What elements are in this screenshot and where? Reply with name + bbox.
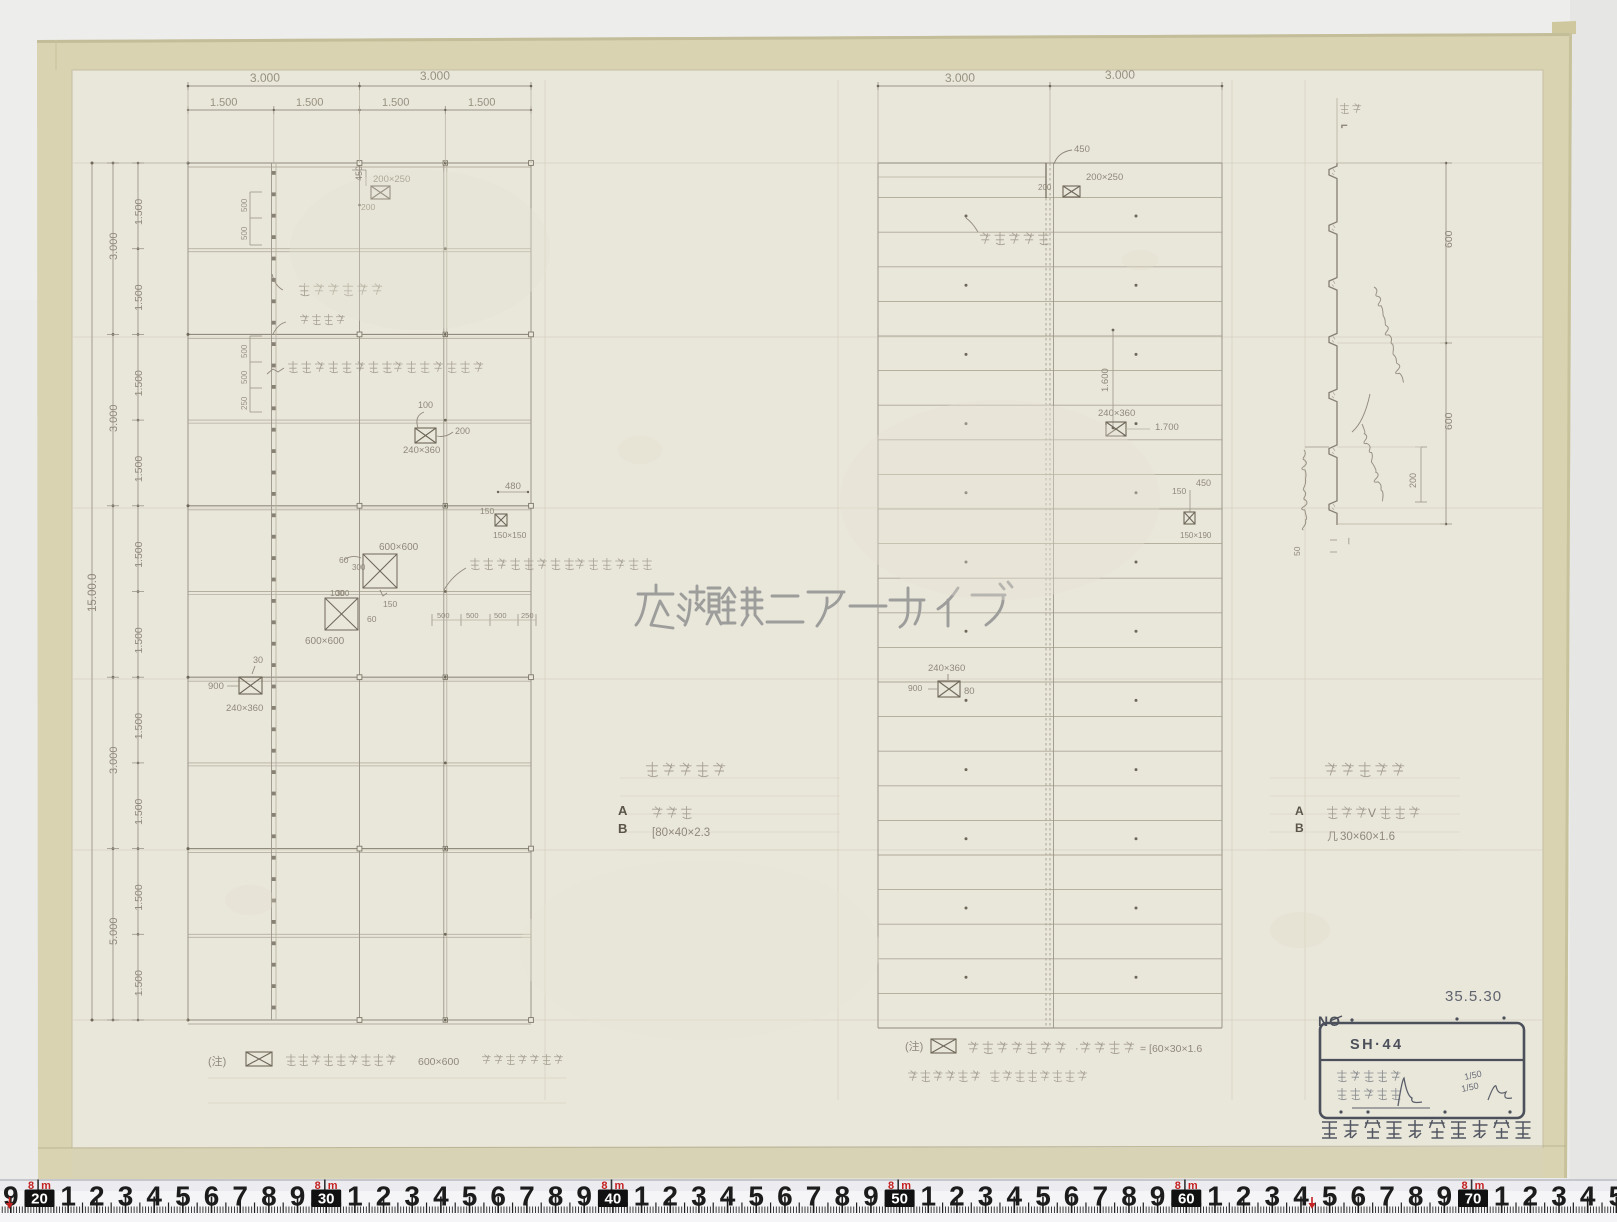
svg-text:50: 50 bbox=[1292, 546, 1302, 556]
svg-text:60: 60 bbox=[1178, 1191, 1195, 1208]
svg-text:200×250: 200×250 bbox=[1086, 172, 1123, 183]
svg-text:1.500: 1.500 bbox=[210, 97, 238, 109]
svg-text:1.500: 1.500 bbox=[133, 370, 145, 396]
svg-text:7: 7 bbox=[519, 1181, 535, 1212]
svg-text:70: 70 bbox=[1465, 1191, 1482, 1208]
svg-text:2: 2 bbox=[376, 1181, 392, 1212]
svg-text:6: 6 bbox=[204, 1181, 220, 1212]
svg-text:600×600: 600×600 bbox=[305, 636, 345, 647]
svg-text:2: 2 bbox=[949, 1181, 965, 1212]
svg-text:ー: ー bbox=[1345, 537, 1354, 545]
svg-text:5: 5 bbox=[1035, 1181, 1051, 1212]
svg-text:1.500: 1.500 bbox=[382, 97, 410, 109]
svg-text:2: 2 bbox=[1523, 1181, 1539, 1212]
svg-text:1.500: 1.500 bbox=[133, 541, 145, 567]
svg-text:4: 4 bbox=[146, 1181, 162, 1212]
svg-text:20: 20 bbox=[31, 1191, 48, 1208]
svg-text:900: 900 bbox=[208, 681, 224, 692]
svg-text:5: 5 bbox=[1322, 1181, 1338, 1212]
svg-text:3: 3 bbox=[118, 1181, 134, 1212]
svg-text:A: A bbox=[1295, 804, 1304, 818]
svg-text:240×360: 240×360 bbox=[1098, 408, 1135, 419]
svg-text:150: 150 bbox=[480, 506, 494, 516]
svg-text:300: 300 bbox=[336, 589, 350, 598]
svg-text:60: 60 bbox=[367, 614, 377, 624]
svg-text:1.700: 1.700 bbox=[1155, 422, 1179, 433]
svg-text:3: 3 bbox=[1265, 1181, 1281, 1212]
svg-text:1: 1 bbox=[1207, 1181, 1223, 1212]
svg-text:8: 8 bbox=[28, 1180, 34, 1192]
svg-text:8: 8 bbox=[1175, 1180, 1181, 1192]
svg-text:= [60×30×1.6: = [60×30×1.6 bbox=[1140, 1043, 1202, 1055]
svg-text:B: B bbox=[618, 821, 627, 836]
svg-text:m: m bbox=[901, 1180, 911, 1192]
svg-text:200: 200 bbox=[1038, 183, 1052, 192]
svg-text:200: 200 bbox=[1408, 473, 1418, 488]
svg-text:3.000: 3.000 bbox=[1105, 67, 1136, 82]
svg-text:9: 9 bbox=[576, 1181, 592, 1212]
svg-text:5.000: 5.000 bbox=[108, 917, 120, 945]
svg-text:600: 600 bbox=[1443, 230, 1455, 248]
svg-text:80: 80 bbox=[964, 686, 975, 697]
svg-text:3: 3 bbox=[978, 1181, 994, 1212]
svg-text:3.000: 3.000 bbox=[108, 232, 120, 260]
svg-text:9: 9 bbox=[3, 1181, 19, 1212]
svg-text:50: 50 bbox=[891, 1191, 908, 1208]
svg-text:9: 9 bbox=[290, 1181, 306, 1212]
svg-text:1: 1 bbox=[347, 1181, 363, 1212]
svg-text:5: 5 bbox=[1609, 1181, 1617, 1212]
svg-text:m: m bbox=[41, 1180, 51, 1192]
svg-text:3: 3 bbox=[1551, 1181, 1567, 1212]
svg-text:5: 5 bbox=[748, 1181, 764, 1212]
svg-text:4: 4 bbox=[1293, 1181, 1309, 1212]
svg-text:150×150: 150×150 bbox=[493, 530, 527, 540]
svg-text:4: 4 bbox=[1007, 1181, 1023, 1212]
svg-text:500: 500 bbox=[437, 611, 450, 620]
svg-text:m: m bbox=[615, 1180, 625, 1192]
svg-text:3.000: 3.000 bbox=[945, 70, 976, 85]
svg-text:4: 4 bbox=[1580, 1181, 1596, 1212]
svg-text:8: 8 bbox=[315, 1180, 321, 1192]
svg-text:1.500: 1.500 bbox=[133, 627, 145, 653]
svg-text:m: m bbox=[328, 1180, 338, 1192]
svg-text:240×360: 240×360 bbox=[403, 445, 440, 456]
svg-text:30×60×1.6: 30×60×1.6 bbox=[1340, 831, 1395, 843]
svg-text:SH·44: SH·44 bbox=[1350, 1037, 1404, 1053]
svg-text:[80×40×2.3: [80×40×2.3 bbox=[652, 827, 710, 839]
svg-text:8: 8 bbox=[888, 1180, 894, 1192]
svg-text:480: 480 bbox=[505, 481, 521, 492]
svg-text:1.500: 1.500 bbox=[133, 970, 145, 996]
svg-text:150×190: 150×190 bbox=[1180, 531, 1212, 540]
svg-text:(注): (注) bbox=[905, 1039, 923, 1053]
svg-text:几: 几 bbox=[1327, 831, 1338, 843]
svg-text:8: 8 bbox=[1461, 1180, 1467, 1192]
svg-text:A: A bbox=[618, 803, 628, 818]
svg-text:(注): (注) bbox=[208, 1054, 226, 1068]
svg-text:m: m bbox=[1188, 1180, 1198, 1192]
svg-text:7: 7 bbox=[1093, 1181, 1109, 1212]
svg-text:1.500: 1.500 bbox=[296, 97, 324, 109]
svg-text:4: 4 bbox=[720, 1181, 736, 1212]
svg-text:2: 2 bbox=[89, 1181, 105, 1212]
svg-text:150: 150 bbox=[383, 599, 397, 609]
svg-text:500: 500 bbox=[466, 611, 479, 620]
svg-text:1.500: 1.500 bbox=[133, 199, 145, 225]
svg-text:5: 5 bbox=[462, 1181, 478, 1212]
svg-text:250: 250 bbox=[240, 396, 249, 410]
svg-text:500: 500 bbox=[494, 611, 507, 620]
svg-text:30: 30 bbox=[318, 1191, 335, 1208]
svg-text:40: 40 bbox=[605, 1191, 622, 1208]
svg-text:1.500: 1.500 bbox=[133, 284, 145, 310]
svg-text:100: 100 bbox=[418, 400, 433, 410]
svg-text:30: 30 bbox=[253, 655, 263, 665]
svg-text:500: 500 bbox=[240, 344, 249, 358]
svg-text:500: 500 bbox=[240, 370, 249, 384]
svg-text:15.00.0: 15.00.0 bbox=[87, 574, 99, 612]
svg-text:150: 150 bbox=[1172, 486, 1186, 496]
svg-text:7: 7 bbox=[232, 1181, 248, 1212]
svg-text:3.000: 3.000 bbox=[108, 746, 120, 774]
svg-text:1.500: 1.500 bbox=[133, 713, 145, 739]
svg-text:3.000: 3.000 bbox=[250, 70, 281, 85]
svg-text:3: 3 bbox=[404, 1181, 420, 1212]
svg-text:7: 7 bbox=[806, 1181, 822, 1212]
svg-text:7: 7 bbox=[1379, 1181, 1395, 1212]
svg-text:1: 1 bbox=[60, 1181, 76, 1212]
svg-text:9: 9 bbox=[1150, 1181, 1166, 1212]
svg-text:600×600: 600×600 bbox=[418, 1056, 459, 1068]
svg-text:B: B bbox=[1295, 821, 1304, 835]
svg-text:1: 1 bbox=[921, 1181, 937, 1212]
svg-text:900: 900 bbox=[908, 683, 922, 693]
svg-text:500: 500 bbox=[240, 226, 249, 240]
svg-text:1: 1 bbox=[1494, 1181, 1510, 1212]
svg-text:60: 60 bbox=[339, 555, 349, 565]
svg-text:1.500: 1.500 bbox=[468, 97, 496, 109]
svg-text:1.500: 1.500 bbox=[133, 456, 145, 482]
svg-text:2: 2 bbox=[1236, 1181, 1252, 1212]
svg-text:9: 9 bbox=[863, 1181, 879, 1212]
svg-text:V: V bbox=[1368, 806, 1376, 820]
svg-text:6: 6 bbox=[1064, 1181, 1080, 1212]
svg-text:250: 250 bbox=[521, 611, 534, 620]
svg-text:8: 8 bbox=[835, 1181, 851, 1212]
svg-text:450: 450 bbox=[1196, 478, 1211, 488]
svg-text:8: 8 bbox=[548, 1181, 564, 1212]
svg-text:1: 1 bbox=[634, 1181, 650, 1212]
svg-text:m: m bbox=[1475, 1180, 1485, 1192]
svg-text:3.000: 3.000 bbox=[108, 404, 120, 432]
svg-text:3.000: 3.000 bbox=[420, 68, 451, 83]
svg-text:200: 200 bbox=[455, 426, 470, 436]
svg-text:2: 2 bbox=[662, 1181, 678, 1212]
svg-text:5: 5 bbox=[175, 1181, 191, 1212]
svg-text:450: 450 bbox=[1074, 144, 1090, 155]
svg-text:240×360: 240×360 bbox=[928, 663, 965, 674]
svg-text:1.500: 1.500 bbox=[133, 884, 145, 910]
svg-text:6: 6 bbox=[1351, 1181, 1367, 1212]
svg-text:600: 600 bbox=[1443, 412, 1455, 430]
svg-text:6: 6 bbox=[490, 1181, 506, 1212]
svg-text:8: 8 bbox=[1408, 1181, 1424, 1212]
svg-text:8: 8 bbox=[1121, 1181, 1137, 1212]
svg-text:1.600: 1.600 bbox=[1100, 368, 1111, 392]
svg-text:500: 500 bbox=[240, 198, 249, 212]
svg-text:300: 300 bbox=[352, 563, 366, 572]
svg-text:35.5.30: 35.5.30 bbox=[1445, 988, 1502, 1005]
svg-text:240×360: 240×360 bbox=[226, 703, 263, 714]
svg-text:┓: ┓ bbox=[1337, 123, 1348, 129]
svg-text:9: 9 bbox=[1437, 1181, 1453, 1212]
svg-text:600×600: 600×600 bbox=[379, 542, 419, 553]
svg-text:1.500: 1.500 bbox=[133, 798, 145, 824]
svg-text:8: 8 bbox=[601, 1180, 607, 1192]
svg-text:8: 8 bbox=[261, 1181, 277, 1212]
svg-text:3: 3 bbox=[691, 1181, 707, 1212]
svg-text:6: 6 bbox=[777, 1181, 793, 1212]
svg-text:4: 4 bbox=[433, 1181, 449, 1212]
svg-text:·: · bbox=[1075, 1043, 1079, 1055]
